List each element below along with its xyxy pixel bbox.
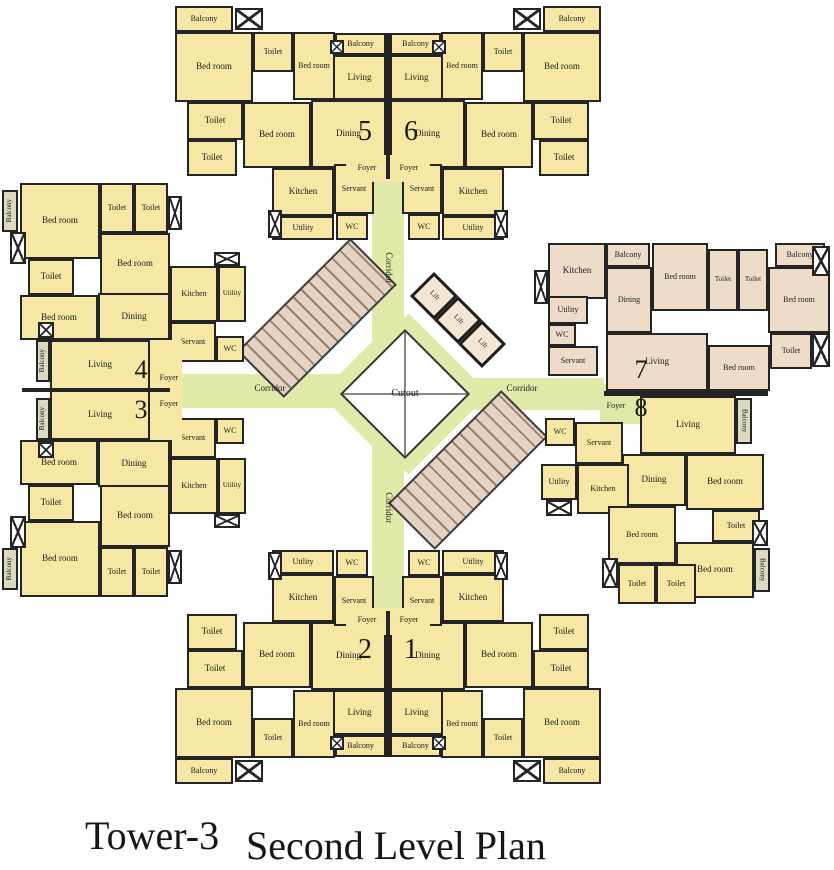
wc-4-text: WC bbox=[224, 345, 237, 353]
living-7: Living bbox=[606, 333, 708, 391]
corridor-right-label: Corridor bbox=[492, 380, 552, 398]
unit-8-number-text: 8 bbox=[635, 394, 648, 421]
utility-4: Utility bbox=[218, 266, 246, 322]
duct-6k bbox=[494, 210, 508, 238]
bedroom-6-2-text: Bed room bbox=[446, 62, 478, 70]
wc-3-text: WC bbox=[224, 427, 237, 435]
balcony-4-2: Balcony bbox=[36, 340, 50, 382]
duct-7a bbox=[534, 270, 548, 304]
dining-7-text: Dining bbox=[618, 296, 640, 304]
bedroom-3-2-text: Bed room bbox=[117, 511, 153, 520]
unit-1-number-text: 1 bbox=[404, 635, 418, 664]
unit-8-number: 8 bbox=[626, 390, 656, 426]
wc-8-text: WC bbox=[554, 428, 567, 436]
toilet-1-2: Toilet bbox=[533, 650, 589, 688]
kitchen-6-text: Kitchen bbox=[459, 187, 488, 196]
unit-2-number: 2 bbox=[350, 630, 380, 670]
wc-8: WC bbox=[545, 418, 575, 446]
wc-1-text: WC bbox=[418, 559, 431, 567]
living-4-text: Living bbox=[88, 360, 112, 369]
balcony-2: Balcony bbox=[175, 758, 233, 784]
bedroom-5-2: Bed room bbox=[293, 32, 335, 100]
toilet-3-2-text: Toilet bbox=[142, 568, 161, 576]
cutout-label: Cutout bbox=[375, 386, 435, 402]
balcony-4-text: Balcony bbox=[6, 199, 13, 222]
toilet-3-3: Toilet bbox=[28, 485, 74, 521]
balcony-3: Balcony bbox=[2, 548, 18, 590]
duct-8c bbox=[752, 520, 768, 546]
kitchen-8-text: Kitchen bbox=[590, 485, 615, 493]
foyer-6-label-text: Foyer bbox=[400, 164, 419, 172]
servant-4-text: Servant bbox=[181, 338, 205, 346]
utility-2-text: Utility bbox=[293, 558, 314, 566]
bedroom-4-2: Bed room bbox=[100, 233, 170, 295]
bedroom-2-2: Bed room bbox=[293, 690, 335, 758]
unit-5-number: 5 bbox=[350, 112, 380, 152]
toilet-8-3: Toilet bbox=[656, 564, 696, 604]
bedroom-6-1-text: Bed room bbox=[544, 62, 580, 71]
toilet-5-3: Toilet bbox=[187, 140, 237, 176]
wc-7: WC bbox=[548, 324, 576, 346]
toilet-4-3-text: Toilet bbox=[41, 272, 62, 281]
foyer-2-label: Foyer bbox=[348, 612, 386, 628]
unit-7-number-text: 7 bbox=[635, 356, 648, 383]
wc-2: WC bbox=[336, 550, 368, 576]
bedroom-5-1: Bed room bbox=[175, 32, 253, 102]
bedroom-3-3: Bed room bbox=[20, 440, 98, 485]
utility-8-text: Utility bbox=[549, 478, 570, 486]
duct-4b bbox=[10, 232, 26, 264]
duct-4c bbox=[38, 322, 54, 338]
balcony-3-text: Balcony bbox=[6, 557, 13, 580]
wc-4: WC bbox=[216, 336, 244, 362]
utility-3-text: Utility bbox=[223, 482, 241, 489]
lift-2-text: Lift bbox=[452, 314, 465, 327]
unit-1-number: 1 bbox=[396, 630, 426, 670]
toilet-5-3-text: Toilet bbox=[202, 153, 223, 162]
kitchen-7-text: Kitchen bbox=[563, 266, 592, 275]
bedroom-8-1: Bed room bbox=[686, 454, 764, 510]
toilet-5-2: Toilet bbox=[187, 102, 243, 140]
balcony-8-1: Balcony bbox=[736, 398, 752, 444]
duct-5k bbox=[268, 210, 282, 238]
duct-4u bbox=[214, 252, 240, 266]
duct-3a bbox=[168, 550, 182, 584]
bedroom-8-3-text: Bed room bbox=[697, 565, 733, 574]
kitchen-5-text: Kitchen bbox=[289, 187, 318, 196]
lift-1-text: Lift bbox=[428, 290, 441, 303]
bedroom-2-3: Bed room bbox=[243, 622, 311, 688]
wall-56 bbox=[386, 33, 390, 179]
bedroom-4-3: Bed room bbox=[20, 295, 98, 340]
toilet-3-1-text: Toilet bbox=[108, 568, 127, 576]
dining-8: Dining bbox=[622, 454, 686, 506]
bedroom-7-1: Bed room bbox=[652, 243, 708, 311]
title-plan-name: Second Level Plan bbox=[246, 822, 546, 869]
bedroom-5-3: Bed room bbox=[243, 102, 311, 168]
bedroom-6-3: Bed room bbox=[465, 102, 533, 168]
bedroom-5-1-text: Bed room bbox=[196, 62, 232, 71]
bedroom-3-3-text: Bed room bbox=[41, 458, 77, 467]
kitchen-4-text: Kitchen bbox=[181, 290, 206, 298]
bedroom-7-2: Bed room bbox=[768, 267, 830, 333]
balcony-5: Balcony bbox=[175, 6, 233, 32]
utility-8: Utility bbox=[541, 464, 577, 500]
balcony-5-text: Balcony bbox=[191, 15, 218, 23]
duct-7b bbox=[812, 246, 830, 276]
duct-5b bbox=[330, 40, 344, 54]
living-6: Living bbox=[390, 55, 443, 100]
kitchen-2-text: Kitchen bbox=[289, 593, 318, 602]
kitchen-5: Kitchen bbox=[272, 168, 334, 216]
unit-4-number: 4 bbox=[126, 352, 156, 388]
balcony-4-2-text: Balcony bbox=[39, 349, 46, 372]
toilet-6-2: Toilet bbox=[533, 102, 589, 140]
duct-8a bbox=[546, 500, 572, 516]
bedroom-8-2-text: Bed room bbox=[626, 531, 658, 539]
bedroom-7-3-text: Bed room bbox=[723, 364, 755, 372]
bedroom-6-1: Bed room bbox=[523, 32, 601, 102]
duct-6b bbox=[432, 40, 446, 54]
balcony-1-text: Balcony bbox=[559, 767, 586, 775]
balcony-8-2-text: Balcony bbox=[758, 558, 765, 581]
bedroom-7-3: Bed room bbox=[708, 345, 770, 391]
toilet-8-2: Toilet bbox=[618, 564, 656, 604]
utility-6-text: Utility bbox=[463, 224, 484, 232]
corridor-bottom-label-text: Corridor bbox=[383, 493, 392, 524]
toilet-3-3-text: Toilet bbox=[41, 498, 62, 507]
lift-3-text: Lift bbox=[476, 338, 489, 351]
bedroom-4-1: Bed room bbox=[20, 183, 100, 259]
wc-6-text: WC bbox=[418, 223, 431, 231]
toilet-7-1: Toilet bbox=[708, 249, 738, 311]
bedroom-1-2-text: Bed room bbox=[446, 720, 478, 728]
wc-3: WC bbox=[216, 418, 244, 444]
toilet-2-3: Toilet bbox=[187, 614, 237, 650]
balcony-4: Balcony bbox=[2, 190, 18, 232]
duct-4a bbox=[168, 196, 182, 230]
foyer-3-label-text: Foyer bbox=[160, 400, 179, 408]
duct-1a bbox=[513, 760, 541, 782]
servant-7: Servant bbox=[548, 346, 598, 376]
toilet-3-1: Toilet bbox=[100, 547, 134, 597]
unit-3-number: 3 bbox=[126, 392, 156, 428]
balcony-2-2-text: Balcony bbox=[347, 742, 374, 750]
balcony-1: Balcony bbox=[543, 758, 601, 784]
toilet-6-1-text: Toilet bbox=[494, 48, 513, 56]
balcony-3-2-text: Balcony bbox=[39, 407, 46, 430]
servant-8: Servant bbox=[575, 422, 623, 464]
kitchen-4: Kitchen bbox=[170, 266, 218, 322]
dining-3: Dining bbox=[98, 440, 170, 487]
balcony-6-text: Balcony bbox=[559, 15, 586, 23]
bedroom-1-1: Bed room bbox=[523, 688, 601, 758]
balcony-5-2-text: Balcony bbox=[347, 40, 374, 48]
servant-8-text: Servant bbox=[587, 439, 611, 447]
toilet-8-2-text: Toilet bbox=[628, 580, 647, 588]
dining-4: Dining bbox=[98, 293, 170, 340]
duct-3c bbox=[38, 442, 54, 458]
dining-8-text: Dining bbox=[641, 475, 666, 484]
kitchen-3-text: Kitchen bbox=[181, 482, 206, 490]
living-2: Living bbox=[333, 690, 386, 735]
toilet-2-1: Toilet bbox=[253, 718, 293, 758]
foyer-1-label-text: Foyer bbox=[400, 616, 419, 624]
kitchen-1: Kitchen bbox=[442, 574, 504, 622]
balcony-7-1-text: Balcony bbox=[615, 251, 642, 259]
duct-1k bbox=[494, 552, 508, 580]
wc-5: WC bbox=[336, 214, 368, 240]
toilet-1-3-text: Toilet bbox=[554, 627, 575, 636]
toilet-4-2-text: Toilet bbox=[142, 204, 161, 212]
unit-2-number-text: 2 bbox=[358, 635, 372, 664]
balcony-2-text: Balcony bbox=[191, 767, 218, 775]
toilet-7-2: Toilet bbox=[738, 249, 768, 311]
toilet-6-3-text: Toilet bbox=[554, 153, 575, 162]
toilet-7-3-text: Toilet bbox=[782, 347, 801, 355]
unit-6-number-text: 6 bbox=[404, 117, 418, 146]
bedroom-5-3-text: Bed room bbox=[259, 130, 295, 139]
title-tower: Tower-3 bbox=[85, 812, 219, 859]
bedroom-1-2: Bed room bbox=[441, 690, 483, 758]
toilet-8-1-text: Toilet bbox=[727, 522, 746, 530]
bedroom-3-1: Bed room bbox=[20, 521, 100, 597]
bedroom-2-3-text: Bed room bbox=[259, 650, 295, 659]
bedroom-8-1-text: Bed room bbox=[707, 477, 743, 486]
unit-5-number-text: 5 bbox=[358, 117, 372, 146]
duct-8b bbox=[602, 558, 618, 588]
unit-4-number-text: 4 bbox=[135, 356, 148, 383]
kitchen-2: Kitchen bbox=[272, 574, 334, 622]
bedroom-2-2-text: Bed room bbox=[298, 720, 330, 728]
toilet-2-2: Toilet bbox=[187, 650, 243, 688]
toilet-1-1: Toilet bbox=[483, 718, 523, 758]
living-1-text: Living bbox=[405, 708, 429, 717]
duct-3b bbox=[10, 516, 26, 548]
toilet-2-1-text: Toilet bbox=[264, 734, 283, 742]
bedroom-4-2-text: Bed room bbox=[117, 259, 153, 268]
floor-plan: Tower-3 Second Level Plan BalconyBed roo… bbox=[0, 0, 834, 870]
corridor-left-label: Corridor bbox=[240, 380, 300, 398]
bedroom-3-1-text: Bed room bbox=[42, 554, 78, 563]
living-2-text: Living bbox=[348, 708, 372, 717]
foyer-8-label-text: Foyer bbox=[607, 402, 626, 410]
duct-1b bbox=[432, 736, 446, 750]
toilet-2-3-text: Toilet bbox=[202, 627, 223, 636]
toilet-8-3-text: Toilet bbox=[667, 580, 686, 588]
foyer-4-label-text: Foyer bbox=[160, 374, 179, 382]
corridor-bottom-label: Corridor bbox=[376, 476, 400, 540]
utility-3: Utility bbox=[218, 458, 246, 514]
balcony-7-1: Balcony bbox=[606, 243, 650, 267]
duct-2k bbox=[268, 552, 282, 580]
bedroom-1-3-text: Bed room bbox=[481, 650, 517, 659]
duct-5a bbox=[235, 8, 263, 30]
corridor-top-label-text: Corridor bbox=[383, 253, 392, 284]
living-3-text: Living bbox=[88, 410, 112, 419]
corridor-left-label-text: Corridor bbox=[255, 384, 286, 393]
utility-5-text: Utility bbox=[293, 224, 314, 232]
servant-7-text: Servant bbox=[561, 357, 585, 365]
servant-6-text: Servant bbox=[410, 185, 434, 193]
bedroom-2-1-text: Bed room bbox=[196, 718, 232, 727]
toilet-2-2-text: Toilet bbox=[205, 664, 226, 673]
wc-2-text: WC bbox=[346, 559, 359, 567]
foyer-2-label-text: Foyer bbox=[358, 616, 377, 624]
bedroom-1-1-text: Bed room bbox=[544, 718, 580, 727]
unit-3-number-text: 3 bbox=[135, 396, 148, 423]
living-5: Living bbox=[333, 55, 386, 100]
duct-6a bbox=[513, 8, 541, 30]
toilet-4-1-text: Toilet bbox=[108, 204, 127, 212]
balcony-8-2: Balcony bbox=[754, 548, 770, 592]
duct-2a bbox=[235, 760, 263, 782]
balcony-7-2-text: Balcony bbox=[787, 251, 814, 259]
foyer-5-label-text: Foyer bbox=[358, 164, 377, 172]
cutout-label-text: Cutout bbox=[391, 389, 418, 400]
bedroom-3-2: Bed room bbox=[100, 485, 170, 547]
toilet-1-3: Toilet bbox=[539, 614, 589, 650]
toilet-6-2-text: Toilet bbox=[551, 116, 572, 125]
servant-1-text: Servant bbox=[410, 597, 434, 605]
toilet-1-1-text: Toilet bbox=[494, 734, 513, 742]
bedroom-2-1: Bed room bbox=[175, 688, 253, 758]
bedroom-4-3-text: Bed room bbox=[41, 313, 77, 322]
toilet-7-1-text: Toilet bbox=[715, 276, 731, 283]
bedroom-7-1-text: Bed room bbox=[664, 273, 696, 281]
wc-5-text: WC bbox=[346, 223, 359, 231]
duct-2b bbox=[330, 736, 344, 750]
dining-3-text: Dining bbox=[121, 459, 146, 468]
balcony-3-2: Balcony bbox=[36, 398, 50, 440]
living-5-text: Living bbox=[348, 73, 372, 82]
bedroom-4-1-text: Bed room bbox=[42, 216, 78, 225]
bedroom-8-2: Bed room bbox=[608, 506, 676, 564]
wc-6: WC bbox=[408, 214, 440, 240]
utility-7: Utility bbox=[548, 296, 588, 324]
servant-2-text: Servant bbox=[342, 597, 366, 605]
toilet-7-3: Toilet bbox=[770, 333, 812, 369]
toilet-4-1: Toilet bbox=[100, 183, 134, 233]
bedroom-6-3-text: Bed room bbox=[481, 130, 517, 139]
living-6-text: Living bbox=[405, 73, 429, 82]
dining-7: Dining bbox=[606, 267, 652, 333]
toilet-5-1-text: Toilet bbox=[264, 48, 283, 56]
balcony-1-2-text: Balcony bbox=[402, 742, 429, 750]
foyer-1-label: Foyer bbox=[390, 612, 428, 628]
toilet-4-2: Toilet bbox=[134, 183, 168, 233]
utility-7-text: Utility bbox=[558, 306, 579, 314]
corridor-right-label-text: Corridor bbox=[507, 384, 538, 393]
kitchen-3: Kitchen bbox=[170, 458, 218, 514]
servant-3-text: Servant bbox=[181, 434, 205, 442]
duct-7c bbox=[812, 333, 830, 367]
toilet-1-2-text: Toilet bbox=[551, 664, 572, 673]
balcony-6-2-text: Balcony bbox=[402, 40, 429, 48]
toilet-7-2-text: Toilet bbox=[745, 276, 761, 283]
unit-6-number: 6 bbox=[396, 112, 426, 152]
dining-4-text: Dining bbox=[121, 312, 146, 321]
bedroom-5-2-text: Bed room bbox=[298, 62, 330, 70]
living-1: Living bbox=[390, 690, 443, 735]
corridor-top-label: Corridor bbox=[376, 236, 400, 300]
toilet-3-2: Toilet bbox=[134, 547, 168, 597]
balcony-8-1-text: Balcony bbox=[740, 409, 747, 432]
living-8-text: Living bbox=[676, 420, 700, 429]
bedroom-1-3: Bed room bbox=[465, 622, 533, 688]
kitchen-7: Kitchen bbox=[548, 243, 606, 299]
bedroom-6-2: Bed room bbox=[441, 32, 483, 100]
wc-7-text: WC bbox=[556, 331, 569, 339]
balcony-6: Balcony bbox=[543, 6, 601, 32]
foyer-6-label: Foyer bbox=[390, 160, 428, 176]
foyer-5-label: Foyer bbox=[348, 160, 386, 176]
toilet-5-1: Toilet bbox=[253, 32, 293, 72]
kitchen-1-text: Kitchen bbox=[459, 593, 488, 602]
bedroom-7-2-text: Bed room bbox=[783, 296, 815, 304]
utility-4-text: Utility bbox=[223, 290, 241, 297]
toilet-4-3: Toilet bbox=[28, 259, 74, 295]
toilet-6-1: Toilet bbox=[483, 32, 523, 72]
wc-1: WC bbox=[408, 550, 440, 576]
unit-7-number: 7 bbox=[626, 352, 656, 388]
kitchen-6: Kitchen bbox=[442, 168, 504, 216]
duct-3u bbox=[214, 514, 240, 528]
wall-21 bbox=[386, 611, 390, 757]
servant-5-text: Servant bbox=[342, 185, 366, 193]
toilet-5-2-text: Toilet bbox=[205, 116, 226, 125]
utility-1-text: Utility bbox=[463, 558, 484, 566]
toilet-6-3: Toilet bbox=[539, 140, 589, 176]
